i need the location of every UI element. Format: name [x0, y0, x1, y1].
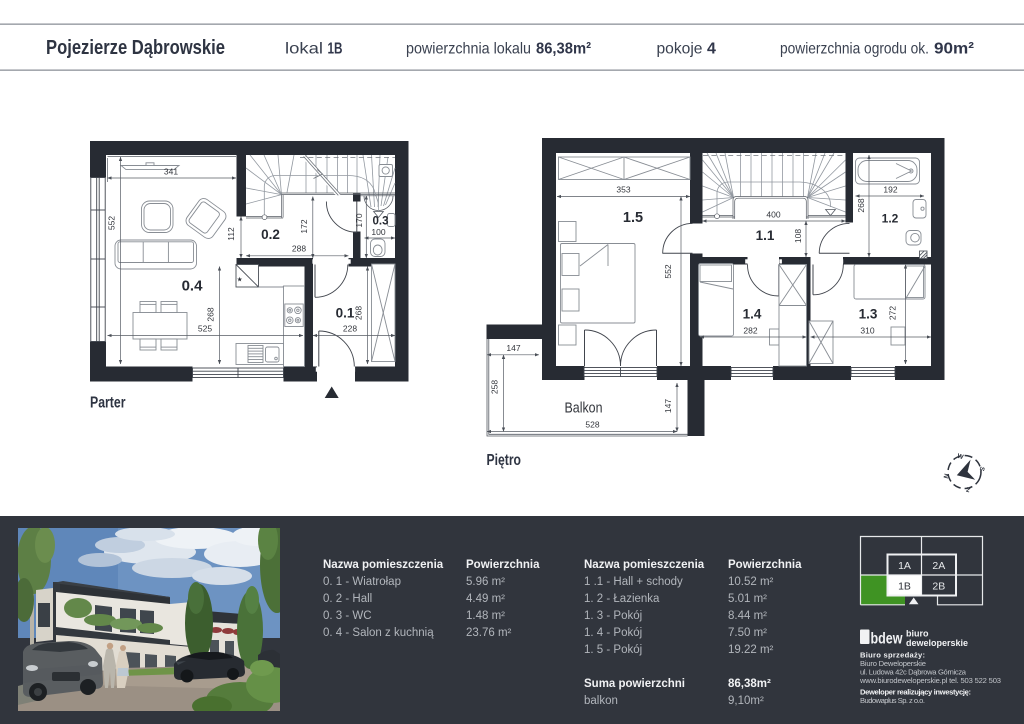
svg-text:268: 268 — [206, 307, 216, 321]
svg-text:0. 4 - Salon z kuchnią: 0. 4 - Salon z kuchnią — [323, 627, 434, 639]
svg-text:5.96 m²: 5.96 m² — [466, 576, 505, 588]
svg-text:4.49 m²: 4.49 m² — [466, 593, 505, 605]
svg-text:552: 552 — [663, 264, 673, 278]
svg-text:525: 525 — [198, 324, 212, 334]
svg-text:Nazwa pomieszczenia: Nazwa pomieszczenia — [584, 559, 705, 571]
svg-text:310: 310 — [860, 326, 874, 336]
svg-text:Parter: Parter — [90, 395, 126, 412]
svg-text:powierzchnia lokalu: powierzchnia lokalu — [406, 41, 531, 58]
svg-text:Powierzchnia: Powierzchnia — [728, 559, 802, 571]
svg-text:0.1: 0.1 — [336, 306, 355, 321]
svg-text:1.1: 1.1 — [756, 228, 775, 243]
svg-text:1A: 1A — [898, 560, 911, 572]
svg-text:1. 4 - Pokój: 1. 4 - Pokój — [584, 627, 642, 639]
svg-text:147: 147 — [506, 343, 520, 353]
svg-text:86,38m²: 86,38m² — [536, 41, 591, 58]
svg-text:5.01 m²: 5.01 m² — [728, 593, 767, 605]
svg-text:288: 288 — [292, 244, 306, 254]
svg-text:balkon: balkon — [584, 695, 618, 707]
svg-text:170: 170 — [354, 213, 364, 227]
svg-text:7.50 m²: 7.50 m² — [728, 627, 767, 639]
svg-text:1B: 1B — [328, 41, 343, 58]
svg-text:Piętro: Piętro — [487, 452, 522, 469]
svg-text:Budowaplus Sp. z o.o.: Budowaplus Sp. z o.o. — [860, 696, 925, 705]
svg-text:19.22 m²: 19.22 m² — [728, 644, 774, 656]
svg-text:552: 552 — [107, 216, 117, 230]
svg-text:www.biurodeweloperskie.pl tel: www.biurodeweloperskie.pl tel. 503 522 5… — [859, 676, 1001, 685]
svg-text:lokal: lokal — [285, 41, 323, 58]
svg-text:23.76 m²: 23.76 m² — [466, 627, 512, 639]
svg-text:108: 108 — [793, 229, 803, 243]
svg-text:172: 172 — [299, 219, 309, 233]
svg-text:Pojezierze Dąbrowskie: Pojezierze Dąbrowskie — [46, 37, 225, 59]
svg-text:0.2: 0.2 — [261, 227, 280, 242]
svg-text:268: 268 — [856, 198, 866, 212]
svg-text:192: 192 — [883, 185, 897, 195]
svg-text:1.48 m²: 1.48 m² — [466, 610, 505, 622]
svg-text:100: 100 — [371, 227, 385, 237]
svg-text:2A: 2A — [932, 560, 945, 572]
svg-text:341: 341 — [164, 167, 178, 177]
svg-text:pokoje: pokoje — [657, 41, 703, 58]
svg-text:112: 112 — [226, 227, 236, 241]
svg-text:★: ★ — [237, 276, 243, 284]
svg-text:powierzchnia ogrodu ok.: powierzchnia ogrodu ok. — [780, 41, 929, 58]
svg-text:Balkon: Balkon — [565, 401, 603, 417]
svg-text:1. 3 - Pokój: 1. 3 - Pokój — [584, 610, 642, 622]
svg-text:Nazwa pomieszczenia: Nazwa pomieszczenia — [323, 559, 444, 571]
svg-text:1.3: 1.3 — [859, 307, 878, 322]
svg-text:1B: 1B — [898, 581, 911, 593]
svg-text:400: 400 — [766, 210, 780, 220]
svg-text:147: 147 — [663, 399, 673, 413]
svg-text:1.4: 1.4 — [743, 307, 762, 322]
svg-text:2B: 2B — [932, 581, 945, 593]
svg-text:228: 228 — [343, 324, 357, 334]
svg-text:282: 282 — [743, 326, 757, 336]
svg-text:1. 5 - Pokój: 1. 5 - Pokój — [584, 644, 642, 656]
svg-text:0.4: 0.4 — [182, 278, 204, 295]
svg-text:258: 258 — [490, 380, 500, 394]
svg-text:1.5: 1.5 — [623, 210, 643, 226]
svg-text:528: 528 — [585, 420, 599, 430]
svg-text:272: 272 — [888, 306, 898, 320]
svg-text:Powierzchnia: Powierzchnia — [466, 559, 540, 571]
svg-text:10.52 m²: 10.52 m² — [728, 576, 774, 588]
svg-text:268: 268 — [354, 306, 364, 320]
svg-text:8.44 m²: 8.44 m² — [728, 610, 767, 622]
svg-text:Suma powierzchni: Suma powierzchni — [584, 678, 685, 690]
svg-text:1 .1 - Hall + schody: 1 .1 - Hall + schody — [584, 576, 683, 588]
svg-text:1.2: 1.2 — [882, 212, 899, 226]
svg-text:90m²: 90m² — [934, 41, 974, 58]
svg-text:0. 1 - Wiatrołap: 0. 1 - Wiatrołap — [323, 576, 401, 588]
svg-text:353: 353 — [616, 185, 630, 195]
svg-text:deweloperskie: deweloperskie — [906, 638, 968, 648]
svg-text:0. 3 - WC: 0. 3 - WC — [323, 610, 372, 622]
svg-text:0.3: 0.3 — [373, 216, 389, 228]
svg-text:86,38m²: 86,38m² — [728, 678, 771, 690]
svg-text:1. 2 - Łazienka: 1. 2 - Łazienka — [584, 593, 660, 605]
svg-text:9,10m²: 9,10m² — [728, 695, 764, 707]
svg-text:0. 2 - Hall: 0. 2 - Hall — [323, 593, 372, 605]
svg-text:bdew: bdew — [871, 631, 904, 648]
svg-text:4: 4 — [707, 41, 716, 58]
svg-text:biuro: biuro — [906, 629, 929, 639]
